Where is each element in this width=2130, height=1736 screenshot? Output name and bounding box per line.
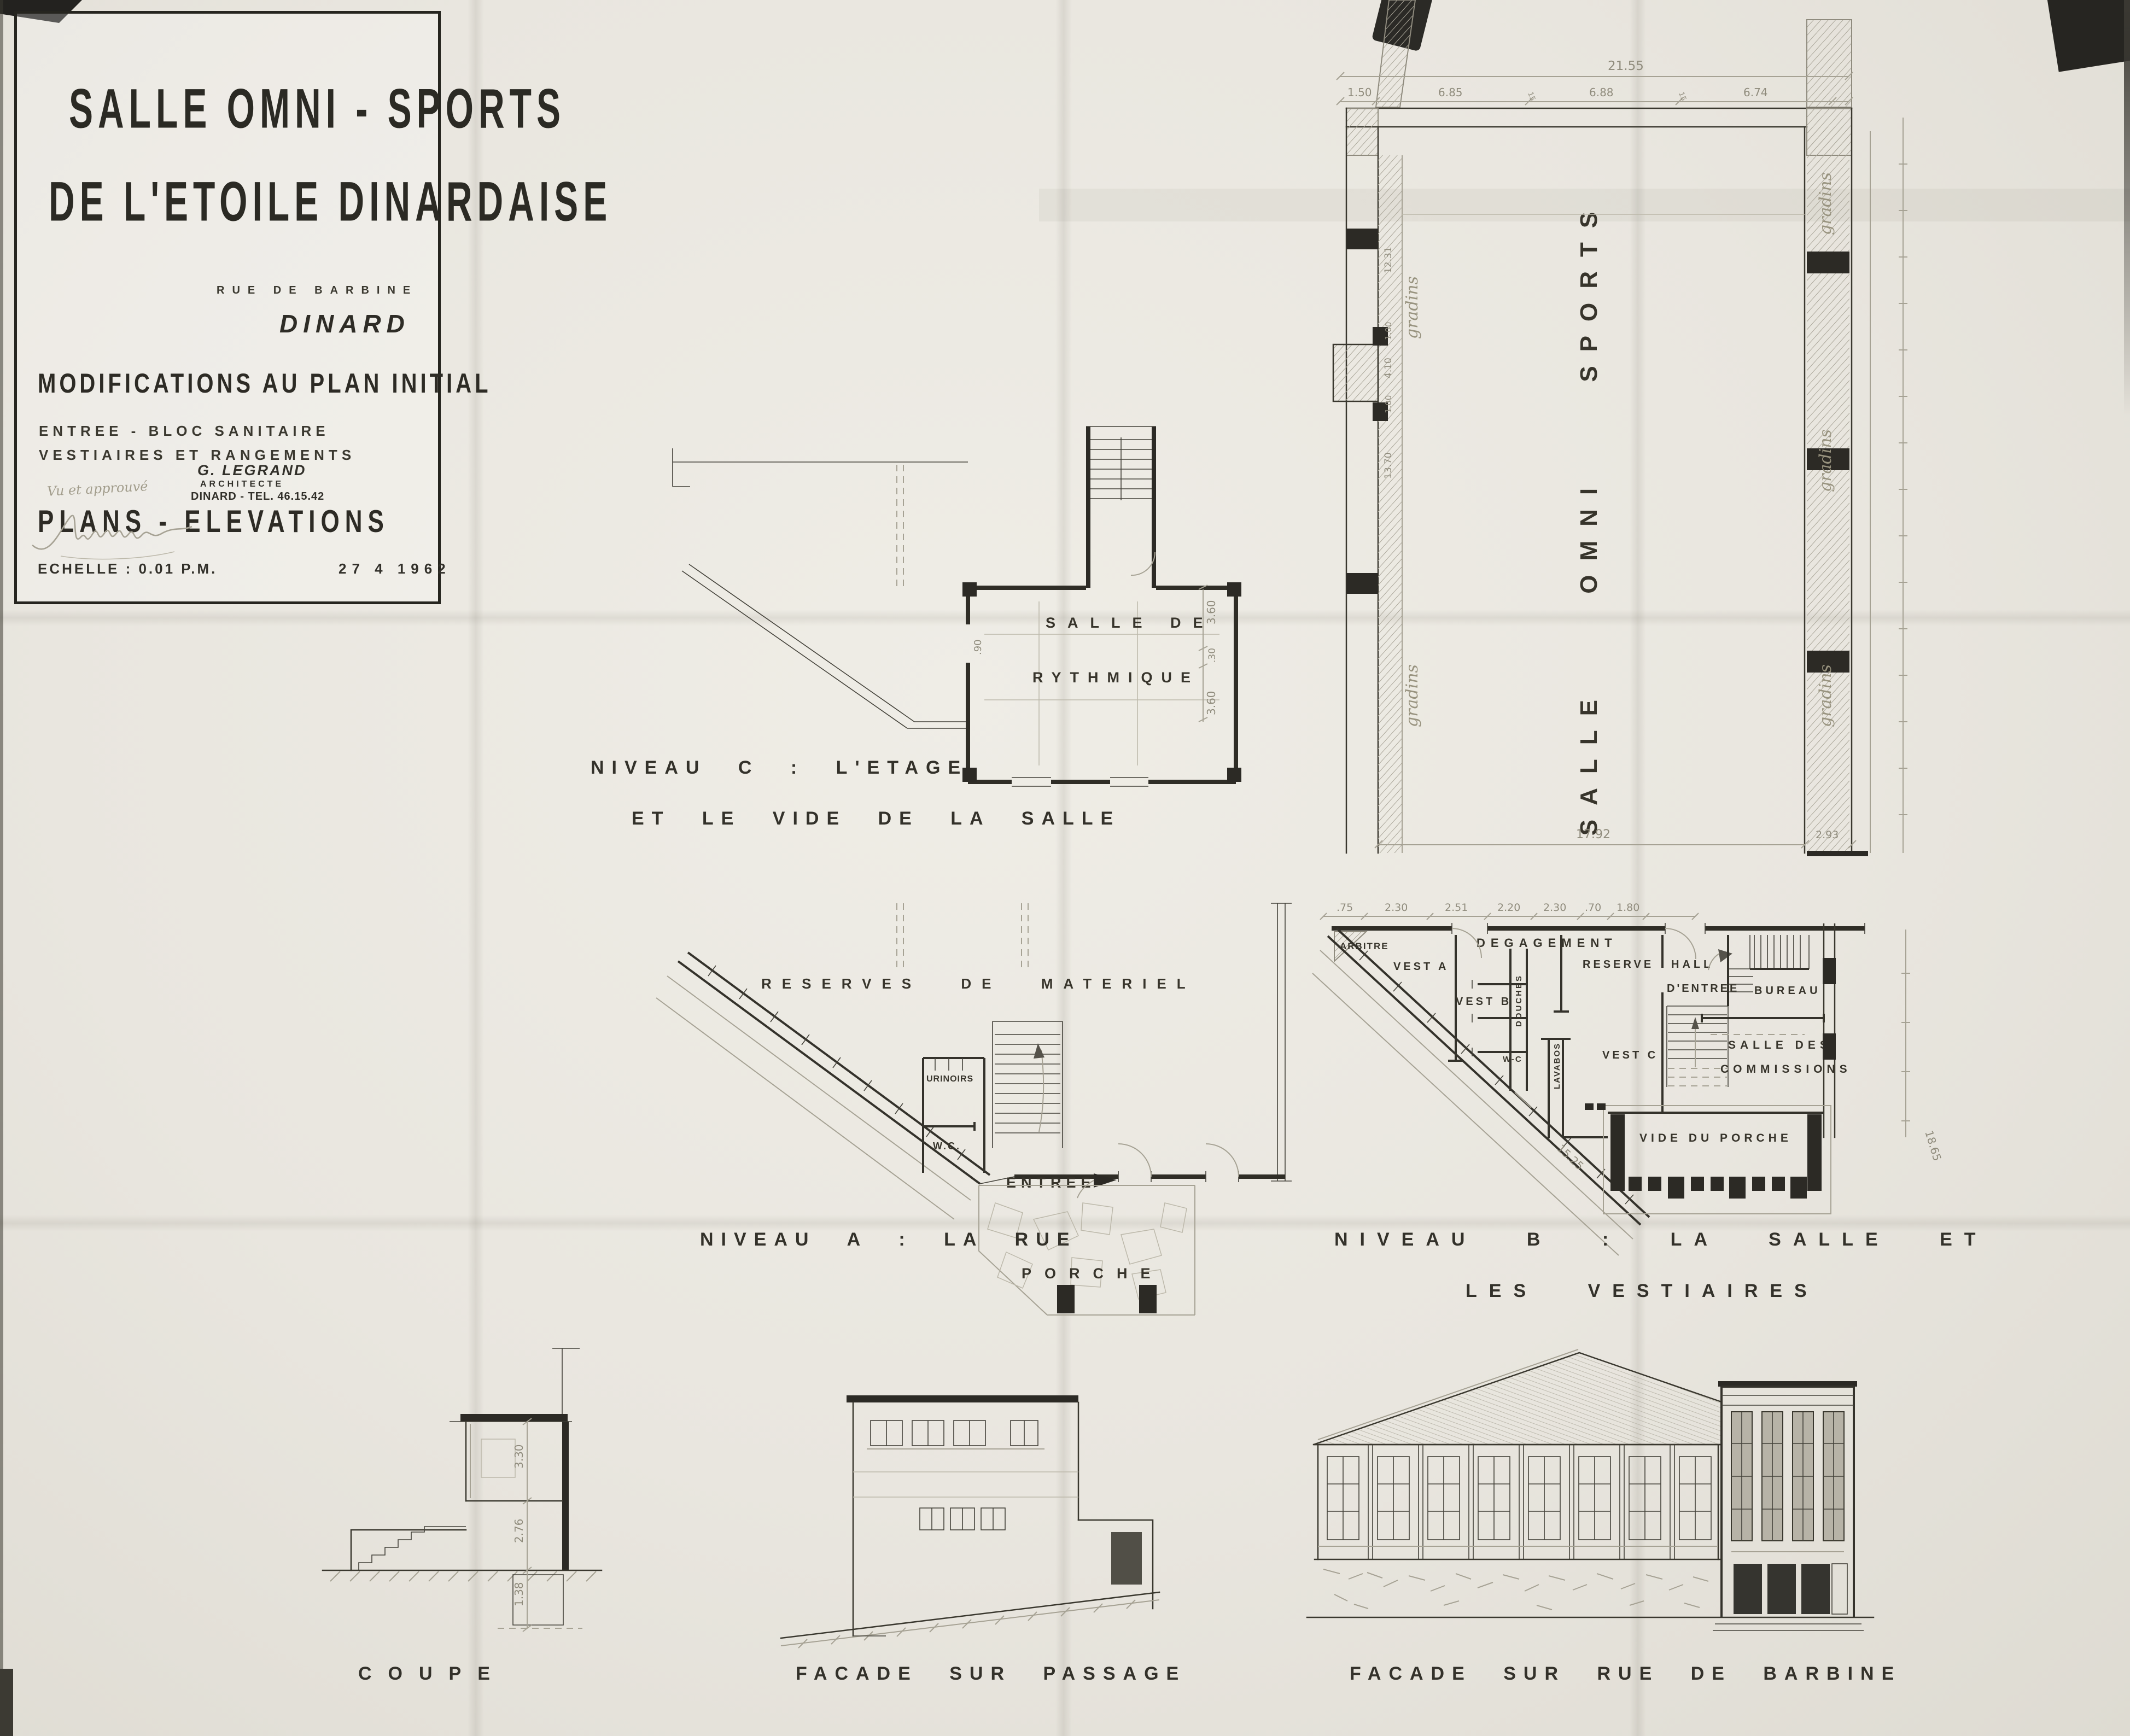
scan-corner-mark: [0, 1669, 13, 1736]
dim-width: 17.92: [1576, 828, 1610, 841]
room-label-reserve: RESERVE: [1583, 958, 1654, 971]
dim: 2.30: [1385, 902, 1408, 914]
room-label-reserves: RESERVES DE MATERIEL: [761, 975, 1196, 992]
drawing-subject: MODIFICATIONS AU PLAN INITIAL: [38, 369, 492, 399]
room-label-wc: W-C: [1503, 1055, 1522, 1064]
drawing-title-line1: SALLE OMNI - SPORTS: [69, 76, 565, 141]
dim: 3.60: [1205, 691, 1218, 715]
dim: 6.74: [1743, 86, 1768, 99]
room-label-degagement: DEGAGEMENT: [1477, 936, 1618, 950]
room-label-salle-de: SALLE DE: [1046, 615, 1215, 631]
room-label-entree: ENTREE: [1006, 1174, 1096, 1191]
dim: .90: [972, 639, 984, 655]
dim: 2.51: [1445, 902, 1468, 914]
title-block: SALLE OMNI - SPORTS DE L'ETOILE DINARDAI…: [14, 11, 441, 604]
room-label-urinoirs: URINOIRS: [926, 1074, 973, 1084]
dim: 1.80: [1617, 902, 1639, 914]
scan-edge: [0, 0, 3, 1736]
room-label-vide-porche: VIDE DU PORCHE: [1639, 1132, 1792, 1144]
room-label-vest-b: VEST B: [1456, 996, 1512, 1008]
caption-facade-passage: FACADE SUR PASSAGE: [796, 1663, 1186, 1685]
scanned-architectural-drawing: SALLE OMNI - SPORTS DE L'ETOILE DINARDAI…: [0, 0, 2130, 1736]
dim: 2.76: [512, 1518, 526, 1543]
dim: .75: [1337, 902, 1353, 914]
caption-niveau-c-line1: NIVEAU C : L'ETAGE: [591, 757, 968, 779]
facade-barbine-drawing: [1302, 1334, 1881, 1662]
scope-line2: VESTIAIRES ET RANGEMENTS: [39, 447, 355, 464]
room-label-lavabos: LAVABOS: [1553, 1043, 1562, 1089]
city: DINARD: [279, 309, 410, 338]
room-label-rythmique: RYTHMIQUE: [1032, 669, 1199, 686]
dim: 15: [1677, 91, 1688, 102]
scan-edge: [2124, 0, 2130, 416]
room-label-bureau: BUREAU: [1754, 985, 1821, 997]
architect-contact: DINARD - TEL. 46.15.42: [191, 490, 324, 503]
niveau-a-plan-drawing: URINOIRS W.C. ENTREE RESERVES DE MATERIE…: [656, 897, 1302, 1334]
caption-niveau-b-line2: LES VESTIAIRES: [1466, 1281, 1819, 1302]
niveau-b-vestiaires-drawing: .75 2.30 2.51 2.20 2.30 .70 1.80 ARBITRE…: [1312, 897, 1958, 1279]
niveau-c-plan-drawing: SALLE DE RYTHMIQUE 3.60 .30 3.60 .90: [656, 416, 1302, 798]
niveau-b-hall-drawing: 21.55 1.50 6.85 6.88 6.74 15 15 gradins …: [1323, 0, 1969, 897]
caption-niveau-b-line1: NIVEAU B : LA SALLE ET: [1334, 1229, 1988, 1250]
gradins-label: gradins: [1403, 276, 1422, 339]
dim: 1.00: [1384, 322, 1393, 340]
dim: 3.60: [1205, 600, 1218, 624]
dim: 2.30: [1543, 902, 1566, 914]
drawing-title-line2: DE L'ETOILE DINARDAISE: [49, 169, 612, 233]
room-label-porche: PORCHE: [1022, 1265, 1164, 1282]
gradins-label: gradins: [1403, 664, 1422, 727]
dim-total: 21.55: [1608, 59, 1644, 73]
dim: 6.88: [1589, 86, 1614, 99]
dim-side: 18.65: [1922, 1129, 1944, 1162]
dim: 4.10: [1383, 358, 1394, 378]
dim: .30: [1207, 648, 1218, 663]
scan-corner-mark: [2046, 0, 2130, 72]
scale-label: ECHELLE : 0.01 P.M.: [38, 560, 217, 577]
address: RUE DE BARBINE: [217, 284, 418, 297]
caption-niveau-a: NIVEAU A : LA RUE: [700, 1229, 1077, 1250]
architect-title: ARCHITECTE: [200, 480, 284, 489]
signature: [28, 495, 208, 566]
room-label-hall: HALL: [1671, 958, 1713, 971]
room-label-commissions: COMMISSIONS: [1720, 1063, 1852, 1075]
dim: 15: [1526, 91, 1537, 102]
dim: 13.70: [1383, 452, 1394, 479]
room-label-salle-omni-sports: SALLE OMNI SPORTS: [1575, 198, 1602, 835]
facade-passage-drawing: [777, 1356, 1165, 1662]
date: 27 4 1962: [339, 560, 451, 577]
room-label-vest-a: VEST A: [1393, 961, 1449, 973]
gradins-label: gradins: [1816, 172, 1835, 235]
dim-diagonal: 15.25: [1555, 1142, 1586, 1173]
room-label-vest-c: VEST C: [1602, 1049, 1658, 1061]
dim: 1.38: [512, 1582, 526, 1606]
room-label-wc: W.C.: [933, 1141, 961, 1152]
dim: 2.20: [1497, 902, 1520, 914]
room-label-douches: DOUCHES: [1514, 974, 1524, 1027]
dim: .70: [1585, 902, 1601, 914]
room-label-salle-des: SALLE DES: [1728, 1039, 1832, 1051]
architect-name: G. LEGRAND: [197, 462, 307, 479]
dim: 1.00: [1384, 395, 1393, 413]
dim: 12.31: [1383, 247, 1394, 273]
caption-coupe: COUPE: [358, 1663, 506, 1685]
dim: 3.30: [512, 1444, 526, 1469]
coupe-drawing: 3.30 2.76 1.38: [306, 1312, 612, 1651]
dim: 1.50: [1347, 86, 1372, 99]
caption-facade-barbine: FACADE SUR RUE DE BARBINE: [1350, 1663, 1901, 1685]
gradins-label: gradins: [1816, 429, 1835, 492]
scope-line1: ENTREE - BLOC SANITAIRE: [39, 423, 330, 440]
room-label-arbitre: ARBITRE: [1340, 941, 1389, 951]
gradins-label: gradins: [1816, 664, 1835, 727]
dim: 6.85: [1438, 86, 1463, 99]
caption-niveau-c-line2: ET LE VIDE DE LA SALLE: [632, 808, 1121, 829]
